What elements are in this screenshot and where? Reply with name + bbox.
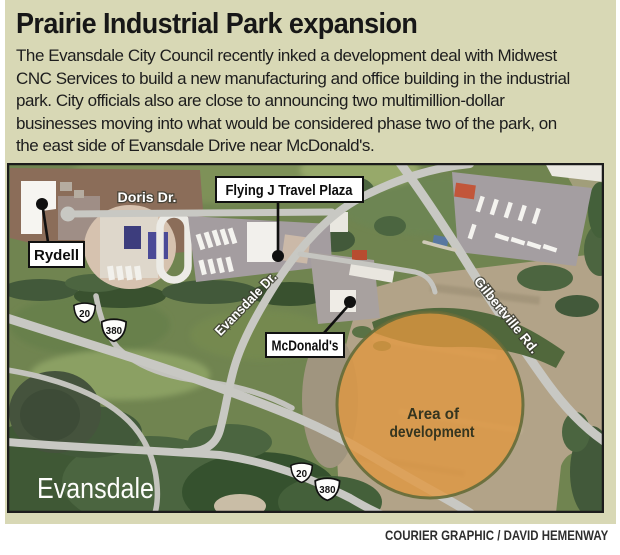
road-doris-dr bbox=[68, 212, 332, 214]
svg-text:380: 380 bbox=[106, 326, 122, 337]
aerial-map: 20 380 20 380 Doris Dr. Evansdale Dr. Gi… bbox=[7, 163, 604, 513]
svg-text:20: 20 bbox=[79, 309, 90, 320]
road-label-doris: Doris Dr. bbox=[118, 190, 177, 205]
aerial-map-svg: 20 380 20 380 Doris Dr. Evansdale Dr. Gi… bbox=[7, 163, 604, 513]
callout-label: Flying J Travel Plaza bbox=[226, 182, 354, 199]
callout-label: McDonald's bbox=[272, 338, 339, 355]
callout-dot bbox=[344, 296, 356, 308]
intro-line: the east side of Evansdale Drive near Mc… bbox=[16, 135, 616, 158]
callout-dot bbox=[36, 198, 48, 210]
callout-label: Rydell bbox=[34, 247, 79, 264]
infographic: Prairie Industrial Park expansion The Ev… bbox=[0, 0, 620, 555]
blue-roof-building bbox=[124, 226, 141, 249]
city-label-evansdale: Evansdale bbox=[37, 473, 154, 505]
red-roof-building bbox=[352, 250, 367, 260]
svg-text:development: development bbox=[390, 424, 475, 441]
credit-line: COURIER GRAPHIC / DAVID HEMENWAY bbox=[385, 527, 608, 543]
area-of-development-circle bbox=[337, 312, 523, 498]
cul-de-sac bbox=[61, 207, 76, 222]
industrial-complex bbox=[84, 205, 188, 289]
svg-text:380: 380 bbox=[319, 485, 335, 496]
red-roof-building bbox=[454, 183, 476, 200]
intro-line: businesses moving into what would be con… bbox=[16, 113, 616, 136]
svg-text:Area of: Area of bbox=[407, 406, 460, 423]
svg-text:20: 20 bbox=[296, 469, 307, 480]
intro-paragraph: The Evansdale City Council recently inke… bbox=[16, 45, 616, 158]
intro-line: park. City officials also are close to a… bbox=[16, 90, 616, 113]
page-title: Prairie Industrial Park expansion bbox=[16, 8, 574, 41]
intro-line: The Evansdale City Council recently inke… bbox=[16, 45, 616, 68]
callout-dot bbox=[272, 250, 284, 262]
intro-line: CNC Services to build a new manufacturin… bbox=[16, 68, 616, 91]
